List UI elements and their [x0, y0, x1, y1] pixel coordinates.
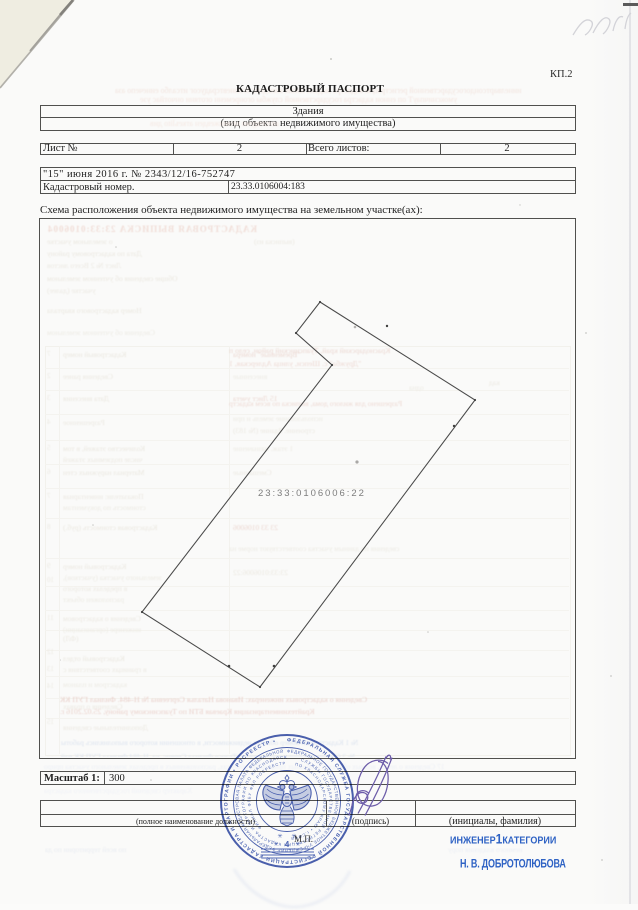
svg-text:✳: ✳ [273, 841, 278, 848]
svg-text:✳: ✳ [291, 833, 296, 840]
svg-text:✳: ✳ [277, 833, 282, 840]
svg-text:4: 4 [285, 840, 290, 849]
svg-text:✳: ✳ [295, 841, 300, 848]
